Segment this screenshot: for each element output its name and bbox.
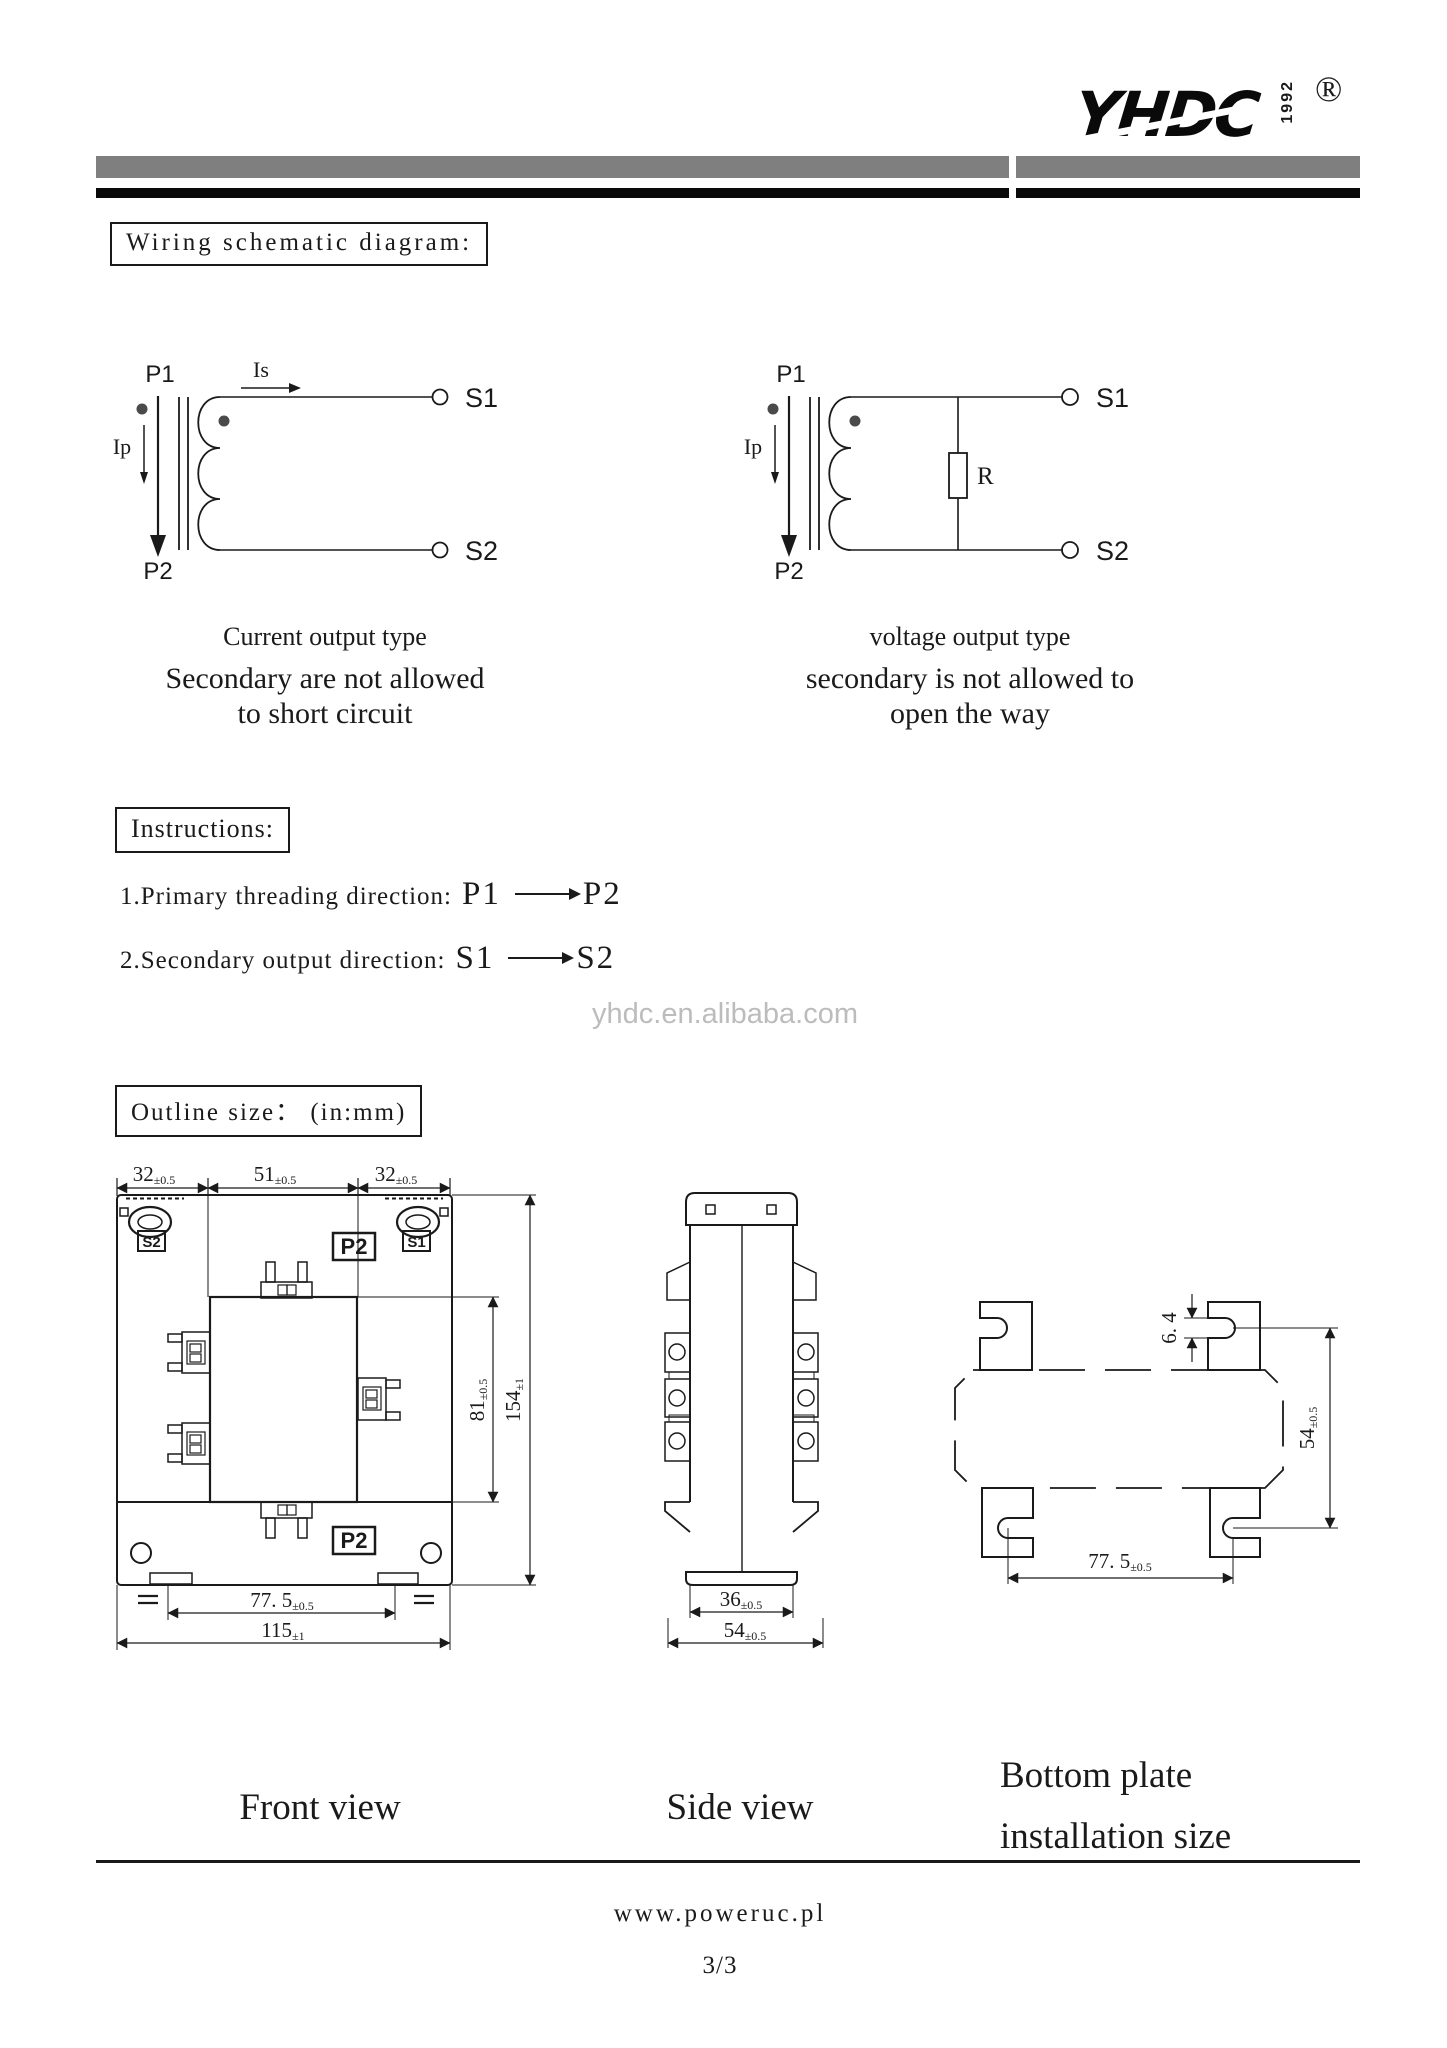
bottom-plate-caption-line2: installation size xyxy=(1000,1806,1330,1867)
caption-type: Current output type xyxy=(100,622,550,652)
left-terminal-clip-lower xyxy=(168,1423,210,1464)
primary-arrowhead xyxy=(150,535,166,557)
stamp-s1: S1 xyxy=(407,1234,425,1251)
instruction-item-2: 2.Secondary output direction:S1S2 xyxy=(120,940,615,977)
terminal-label-p2: P2 xyxy=(774,558,803,585)
instruction-text: 2.Secondary output direction: xyxy=(120,947,445,974)
instruction-to: S2 xyxy=(576,940,615,976)
outline-section-title: Outline size： (in:mm) xyxy=(115,1085,422,1137)
side-view-caption: Side view xyxy=(590,1786,890,1829)
mount-tab-top-left xyxy=(980,1302,1032,1370)
mount-tab-bottom-right xyxy=(1210,1488,1260,1557)
plate-outline-dashed xyxy=(955,1370,1283,1488)
caption-type: voltage output type xyxy=(770,622,1170,652)
bottom-lip xyxy=(686,1572,797,1585)
current-label-ip: Ip xyxy=(744,434,762,459)
mounting-hole-right xyxy=(421,1543,441,1563)
footer-page-number: 3/3 xyxy=(520,1952,920,1980)
stamp-p2-bottom: P2 xyxy=(341,1528,368,1553)
arrow-right-icon xyxy=(508,957,564,960)
instruction-from: P1 xyxy=(462,876,501,912)
bottom-plate-caption: Bottom plate installation size xyxy=(1000,1745,1330,1867)
s1-terminal xyxy=(433,390,448,405)
datasheet-page: YHDC 1992 ® Wiring schematic diagram: P1… xyxy=(0,0,1447,2048)
header-bar-black-left xyxy=(96,188,1009,198)
primary-window xyxy=(210,1297,357,1502)
is-arrowhead xyxy=(289,383,301,393)
terminal-label-s1: S1 xyxy=(465,383,498,413)
voltage-output-caption: voltage output type secondary is not all… xyxy=(770,622,1170,731)
terminal-label-p1: P1 xyxy=(145,361,174,388)
current-label-ip: Ip xyxy=(113,434,131,459)
left-terminal-blocks xyxy=(665,1333,690,1461)
terminal-label-s1: S1 xyxy=(1096,383,1129,413)
front-view-caption: Front view xyxy=(170,1786,470,1829)
burden-resistor xyxy=(949,453,967,498)
watermark-text: yhdc.en.alibaba.com xyxy=(560,998,890,1031)
registered-trademark-icon: ® xyxy=(1315,68,1342,110)
top-tab-right xyxy=(793,1262,816,1300)
terminal-label-p2: P2 xyxy=(143,558,172,585)
bottom-plate-drawing: 6. 4 54±0.5 77. 5±0.5 xyxy=(940,1270,1370,1615)
din-tab-left xyxy=(150,1573,192,1584)
header-bar-black-right xyxy=(1016,188,1360,198)
polarity-dot xyxy=(768,404,779,415)
secondary-coil xyxy=(829,397,851,550)
bottom-flange-right xyxy=(793,1502,818,1532)
s2-terminal xyxy=(433,543,448,558)
dim-rail-spacing: 77. 5±0.5 xyxy=(250,1588,314,1613)
ip-arrowhead xyxy=(140,472,148,484)
ct-body-outline xyxy=(117,1195,452,1585)
terminal-label-s2: S2 xyxy=(465,536,498,566)
current-output-caption: Current output type Secondary are not al… xyxy=(100,622,550,731)
caption-note-line1: Secondary are not allowed xyxy=(100,661,550,696)
arrow-right-icon xyxy=(515,893,571,896)
instruction-item-1: 1.Primary threading direction:P1P2 xyxy=(120,876,622,913)
footer-divider xyxy=(96,1860,1360,1863)
instructions-section-title: Instructions: xyxy=(115,807,290,853)
wiring-diagram-voltage-output: P1 P2 Ip R S1 S2 xyxy=(575,350,1155,585)
s2-terminal xyxy=(1062,542,1078,558)
bottom-flange-left xyxy=(665,1502,690,1532)
dim-total-height: 154±1 xyxy=(501,1378,526,1422)
right-terminal-blocks xyxy=(793,1333,818,1461)
dim-total-depth: 54±0.5 xyxy=(724,1618,767,1643)
dim-total-width: 115±1 xyxy=(261,1618,304,1643)
top-cap xyxy=(686,1193,797,1225)
din-tab-right xyxy=(378,1573,418,1584)
mounting-hole-left xyxy=(131,1543,151,1563)
s1-terminal xyxy=(1062,389,1078,405)
stamp-s2: S2 xyxy=(142,1234,160,1251)
dim-slot-width: 6. 4 xyxy=(1157,1312,1181,1344)
top-tab-left xyxy=(667,1262,690,1300)
polarity-dot xyxy=(137,404,148,415)
caption-note-line2: open the way xyxy=(770,696,1170,731)
wiring-diagram-current-output: P1 P2 Ip Is S1 S2 xyxy=(95,350,515,585)
coil-polarity-dot xyxy=(850,416,861,427)
resistor-label: R xyxy=(977,463,994,490)
right-terminal-clip xyxy=(358,1378,400,1420)
coil-polarity-dot xyxy=(219,416,230,427)
instruction-text: 1.Primary threading direction: xyxy=(120,883,452,910)
terminal-label-p1: P1 xyxy=(776,361,805,388)
stamp-p2-top: P2 xyxy=(341,1234,368,1259)
ip-arrowhead xyxy=(771,472,779,484)
wiring-section-title: Wiring schematic diagram: xyxy=(110,222,488,266)
primary-arrowhead xyxy=(781,535,797,557)
dim-mount-height: 54±0.5 xyxy=(1295,1407,1320,1450)
terminal-label-s2: S2 xyxy=(1096,536,1129,566)
header-bar-gray-left xyxy=(96,156,1009,178)
instruction-from: S1 xyxy=(455,940,494,976)
side-view-drawing: 36±0.5 54±0.5 xyxy=(650,1160,850,1660)
secondary-coil xyxy=(198,397,220,550)
footer-site: www.poweruc.pl xyxy=(520,1900,920,1928)
brand-year: 1992 xyxy=(1279,80,1297,124)
front-view-drawing: 32±0.5 51±0.5 32±0.5 S2 S1 P2 xyxy=(96,1160,546,1660)
caption-note-line1: secondary is not allowed to xyxy=(770,661,1170,696)
caption-note-line2: to short circuit xyxy=(100,696,550,731)
mount-tab-top-right xyxy=(1208,1302,1260,1370)
dim-top-right: 32±0.5 xyxy=(375,1162,418,1187)
dim-mount-width: 77. 5±0.5 xyxy=(1088,1549,1152,1574)
current-label-is: Is xyxy=(253,357,269,382)
dim-top-mid: 51±0.5 xyxy=(254,1162,297,1187)
brand-logo: YHDC 1992 ® xyxy=(1075,70,1365,165)
dim-top-left: 32±0.5 xyxy=(133,1162,176,1187)
left-terminal-clip-upper xyxy=(168,1332,210,1373)
dim-inner-height: 81±0.5 xyxy=(465,1379,490,1422)
dim-body-depth: 36±0.5 xyxy=(720,1587,763,1612)
instruction-to: P2 xyxy=(583,876,622,912)
bottom-plate-caption-line1: Bottom plate xyxy=(1000,1745,1330,1806)
